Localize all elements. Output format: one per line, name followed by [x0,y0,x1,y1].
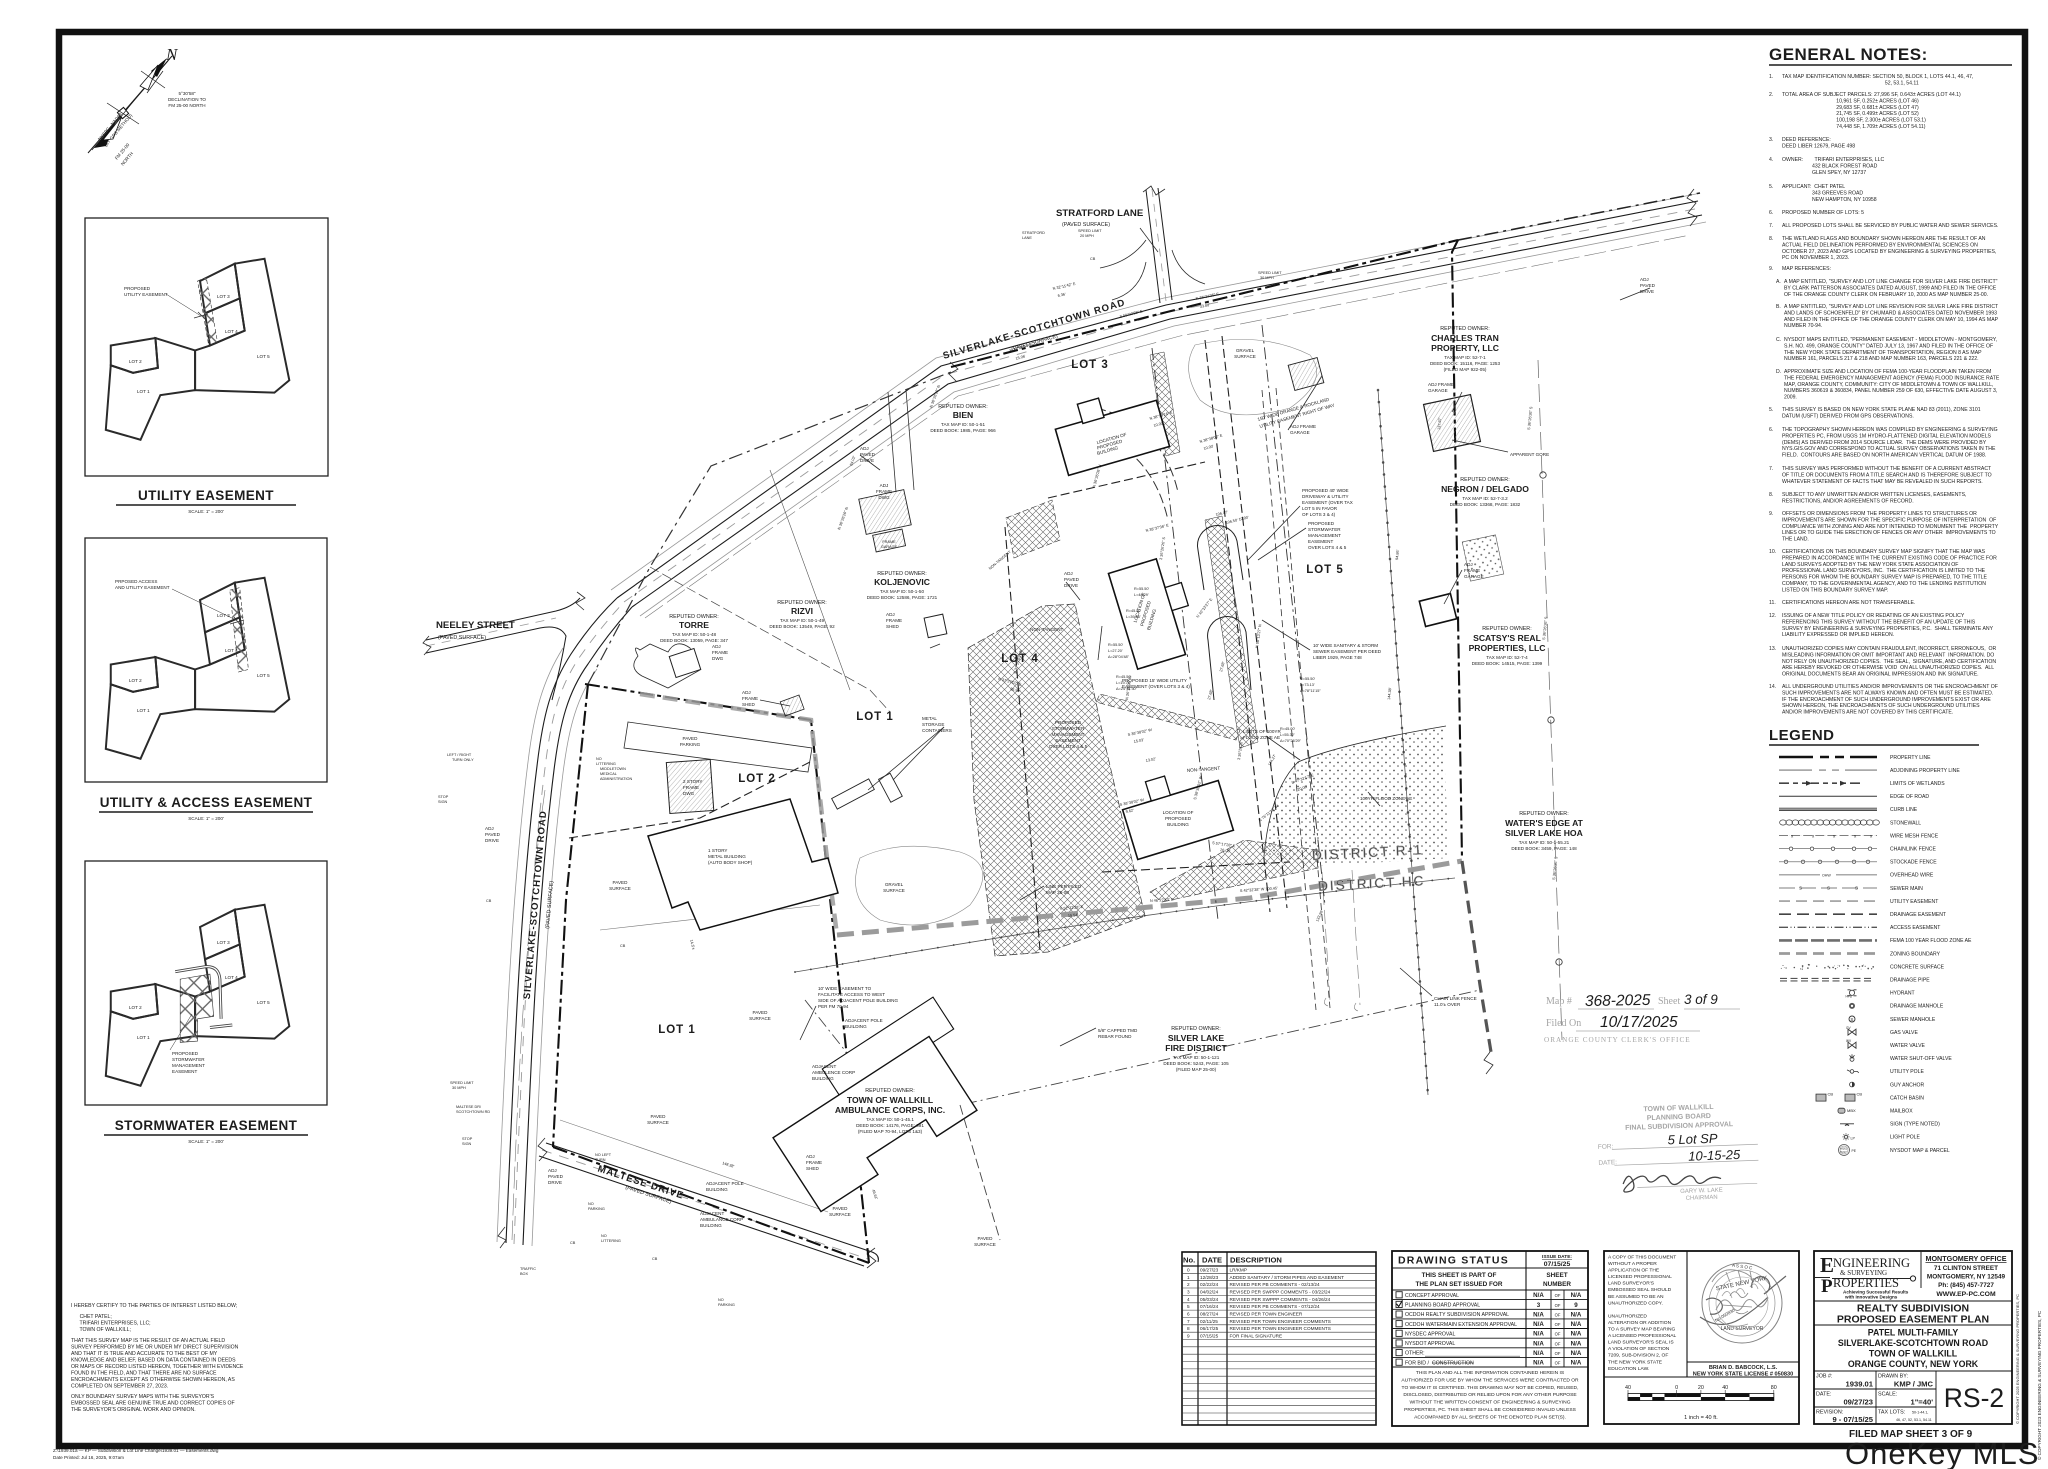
svg-text:FRAME: FRAME [876,489,892,494]
svg-text:OWNER: TRIFARI ENTERPRI: OWNER: TRIFARI ENTERPRISES, LLC [1782,157,1884,163]
svg-text:DEED REFERENCE:: DEED REFERENCE: [1782,137,1831,143]
svg-text:SILVER LAKE HOA: SILVER LAKE HOA [1505,828,1583,838]
svg-text:(PAVED SURFACE): (PAVED SURFACE) [438,635,486,641]
svg-text:CB: CB [1090,257,1096,261]
svg-text:30 MPH: 30 MPH [1260,276,1274,280]
svg-text:DEED BOOK: 13059, PAGE: 347: DEED BOOK: 13059, PAGE: 347 [660,638,728,643]
svg-text:ADJ: ADJ [485,826,494,831]
svg-text:STORMWATER: STORMWATER [172,1057,205,1062]
svg-text:PROPERTIES, LLC: PROPERTIES, LLC [1469,643,1546,653]
svg-text:DRAINAGE MANHOLE: DRAINAGE MANHOLE [1890,1004,1944,1010]
svg-text:with Innovative Designs: with Innovative Designs [1844,1295,1898,1300]
svg-text:TAX MAP ID: 50-1-121: TAX MAP ID: 50-1-121 [1173,1055,1220,1060]
svg-text:FOR FINAL SIGNATURE: FOR FINAL SIGNATURE [1230,1334,1283,1339]
svg-text:FOUND IN THE FIELD, AND THAT T: FOUND IN THE FIELD, AND THAT THERE ARE N… [71,1371,217,1377]
svg-text:LICENSED PROFESSIONAL: LICENSED PROFESSIONAL [1608,1274,1672,1280]
svg-text:© COPYRIGHT 2025 ENGINEERING &: © COPYRIGHT 2025 ENGINEERING & SURVEYING… [2015,1294,2020,1424]
svg-text:HYD: HYD [1846,994,1853,998]
svg-text:TRAFFIC: TRAFFIC [520,1267,536,1271]
svg-text:LIGHT POLE: LIGHT POLE [1890,1135,1921,1141]
svg-text:TAX MAP ID: 50-1-49: TAX MAP ID: 50-1-49 [780,618,824,623]
svg-text:COMPLETED ON SEPTEMBER 27, 202: COMPLETED ON SEPTEMBER 27, 2023. [71,1384,168,1390]
svg-text:MAP, ORANGE COUNTY, COMMUNITY:: MAP, ORANGE COUNTY, COMMUNITY: CITY OF M… [1784,382,1993,388]
svg-text:NYSDEC APPROVAL: NYSDEC APPROVAL [1405,1331,1455,1337]
svg-text:9: 9 [1574,1302,1578,1309]
svg-text:ADJ: ADJ [1640,277,1649,282]
svg-text:APPARENT GORE: APPARENT GORE [1510,452,1549,457]
svg-text:LOT 3: LOT 3 [217,294,230,299]
svg-text:ONLY BOUNDARY SURVEY MAPS WITH: ONLY BOUNDARY SURVEY MAPS WITH THE SURVE… [71,1394,215,1400]
svg-text:WV: WV [1846,1039,1852,1043]
svg-text:ADJOINING PROPERTY LINE: ADJOINING PROPERTY LINE [1890,768,1960,774]
svg-text:TOWN OF WALLKILL;: TOWN OF WALLKILL; [71,1327,131,1333]
svg-text:NEELEY STREET: NEELEY STREET [436,620,515,631]
svg-text:DEED BOOK: 12586, PAGE: 1721: DEED BOOK: 12586, PAGE: 1721 [867,595,938,600]
svg-text:3 of 9: 3 of 9 [1684,992,1718,1007]
svg-text:MISLEADING INFORMATION OR OMIT: MISLEADING INFORMATION OR OMIT IMPORTANT… [1782,652,1994,658]
svg-text:SIGN (TYPE NOTED): SIGN (TYPE NOTED) [1890,1122,1940,1128]
svg-text:KOLJENOVIC: KOLJENOVIC [874,577,930,587]
svg-text:5: 5 [1187,1304,1190,1309]
svg-text:THE LAND.: THE LAND. [1782,537,1809,543]
svg-text:WWW.EP-PC.COM: WWW.EP-PC.COM [1936,1291,1996,1298]
svg-text:N/A: N/A [1533,1292,1544,1299]
svg-text:N/A: N/A [1533,1350,1544,1357]
svg-text:N/A: N/A [1533,1360,1544,1367]
svg-text:07/15/25: 07/15/25 [1544,1261,1571,1268]
svg-text:SCATSY'S REAL: SCATSY'S REAL [1473,633,1541,643]
svg-text:OneKey MLS: OneKey MLS [1845,1436,2039,1469]
svg-text:WATER'S EDGE AT: WATER'S EDGE AT [1505,818,1584,828]
svg-text:Map #: Map # [1546,996,1572,1007]
svg-text:METAL BUILDING: METAL BUILDING [708,854,746,859]
svg-text:THE FEDERAL EMERGENCY MANAGEME: THE FEDERAL EMERGENCY MANAGEMENT AGENCY … [1784,375,2000,381]
svg-text:REVISED PER SWPPP COMMENTS - 0: REVISED PER SWPPP COMMENTS - 04/26/24 [1230,1297,1331,1302]
svg-text:HYDRANT: HYDRANT [1890,991,1915,997]
svg-text:0: 0 [1187,1267,1190,1272]
svg-text:E: E [1820,1253,1834,1277]
svg-text:FEMA 100 YEAR FLOOD ZONE AE: FEMA 100 YEAR FLOOD ZONE AE [1890,938,1972,944]
svg-text:CB: CB [1857,1092,1863,1097]
svg-text:GARAGE: GARAGE [1428,388,1448,393]
svg-text:BUILDING: BUILDING [812,1076,834,1081]
svg-text:SEWER MAIN: SEWER MAIN [1890,886,1923,892]
svg-text:(DEMS) AS DERIVED FROM 2014 SO: (DEMS) AS DERIVED FROM 2014 SOURCE LIDAR… [1782,440,1987,446]
svg-text:UTILITY & ACCESS EASEMENT: UTILITY & ACCESS EASEMENT [100,795,313,810]
svg-text:432 BLACK FOREST ROAD: 432 BLACK FOREST ROAD [1782,163,1878,169]
svg-text:NO: NO [588,1202,594,1206]
svg-text:OF: OF [1555,1322,1561,1327]
svg-text:TORRE: TORRE [679,620,709,630]
svg-text:NUMBER: NUMBER [1543,1281,1571,1288]
svg-text:GENERAL NOTES:: GENERAL NOTES: [1769,45,1928,64]
svg-text:REPUTED OWNER:: REPUTED OWNER: [1460,477,1509,483]
svg-text:6: 6 [1187,1312,1190,1317]
svg-text:A MAP ENTITLED, "SURVEY AND LO: A MAP ENTITLED, "SURVEY AND LOT LINE REV… [1784,304,1999,310]
svg-text:R=45.00': R=45.00' [1280,727,1295,731]
svg-text:N: N [165,45,179,64]
svg-text:S.H. NO. 499, ORANGE COUNTY" D: S.H. NO. 499, ORANGE COUNTY" DATED JULY … [1784,343,1993,349]
svg-text:SCOTCHTOWN RD: SCOTCHTOWN RD [456,1110,490,1114]
svg-text:R=55.50': R=55.50' [1300,677,1315,681]
svg-text:L=73.13': L=73.13' [1300,683,1315,687]
svg-text:PER FM 70-94: PER FM 70-94 [818,1004,849,1009]
svg-text:PROPOSED: PROPOSED [1165,816,1192,821]
svg-text:SURFACE: SURFACE [829,1212,851,1217]
svg-text:L=55.32': L=55.32' [1280,733,1295,737]
svg-text:Δ=78°11'15": Δ=78°11'15" [1300,689,1321,693]
svg-text:LOT 1: LOT 1 [137,1035,150,1040]
svg-text:A.: A. [1776,279,1781,285]
svg-text:THAT THIS SURVEY MAP IS THE RE: THAT THIS SURVEY MAP IS THE RESULT OF AN… [71,1338,225,1344]
svg-text:02/22/24: 02/22/24 [1200,1282,1219,1287]
svg-text:OF: OF [1555,1351,1561,1356]
svg-text:THE PLAN SET ISSUED FOR: THE PLAN SET ISSUED FOR [1416,1281,1503,1288]
svg-text:L=19.74': L=19.74' [1116,681,1131,685]
svg-text:DWG: DWG [683,791,695,796]
svg-text:CONCRETE SURFACE: CONCRETE SURFACE [1890,964,1945,970]
svg-text:8.: 8. [1769,236,1773,242]
svg-text:THE TOPOGRAPHY SHOWN HEREON WA: THE TOPOGRAPHY SHOWN HEREON WAS COMPILED… [1782,427,1998,433]
svg-text:PROPOSED EASEMENT PLAN: PROPOSED EASEMENT PLAN [1837,1314,1989,1326]
svg-text:1 STORY: 1 STORY [708,848,728,853]
svg-text:TAX MAP ID: 52-7-1: TAX MAP ID: 52-7-1 [1444,355,1486,360]
svg-text:SPEED LIMIT: SPEED LIMIT [450,1081,474,1085]
svg-text:7209, SUB-DIVISION 2, OF: 7209, SUB-DIVISION 2, OF [1608,1353,1668,1359]
svg-text:NGINEERING: NGINEERING [1833,1256,1910,1270]
svg-text:EDGE OF ROAD: EDGE OF ROAD [1890,794,1929,800]
svg-text:NYSDOT MAP & PARCEL: NYSDOT MAP & PARCEL [1890,1148,1950,1154]
svg-text:FRAME: FRAME [886,618,902,623]
svg-text:PROPOSED: PROPOSED [1308,521,1335,526]
svg-text:LOT 4: LOT 4 [225,329,238,334]
svg-text:ADJ: ADJ [1064,571,1073,576]
svg-text:AND FILED IN THE OFFICE OF THE: AND FILED IN THE OFFICE OF THE ORANGE CO… [1784,317,1999,323]
svg-text:P: P [1821,1276,1833,1297]
svg-text:NYS.GIS.GOV AND CORRESPOND TO: NYS.GIS.GOV AND CORRESPOND TO ACTUAL SUR… [1782,446,1996,452]
svg-text:OTHER:: OTHER: [1405,1351,1425,1357]
svg-text:EMBOSSED SEAL ARE GENUINE TRUE: EMBOSSED SEAL ARE GENUINE TRUE AND CORRE… [71,1401,235,1407]
svg-text:OR MAPS OF RECORD LISTED HEREO: OR MAPS OF RECORD LISTED HEREON, TOGETHE… [71,1364,244,1370]
svg-text:Δ=24°51'30": Δ=24°51'30" [1116,687,1138,691]
svg-text:DECLINATION TO: DECLINATION TO [168,97,206,102]
svg-text:DEED BOOK: 14515, PAGE: 1399: DEED BOOK: 14515, PAGE: 1399 [1472,661,1543,666]
svg-text:TAX MAP ID: 50-1-50: TAX MAP ID: 50-1-50 [880,589,924,594]
svg-text:1: 1 [1187,1275,1190,1280]
svg-text:SIGN: SIGN [438,800,448,804]
svg-text:368-2025: 368-2025 [1585,992,1651,1010]
svg-text:PAVED: PAVED [548,1174,564,1179]
svg-text:LITTERING: LITTERING [596,762,616,766]
svg-text:LOT 2: LOT 2 [129,359,142,364]
svg-text:PARKING: PARKING [588,1207,605,1211]
svg-text:LANE: LANE [1022,236,1032,240]
svg-text:UNAUTHORIZED COPIES MAY CONTAI: UNAUTHORIZED COPIES MAY CONTAIN FRAUDULE… [1782,646,1996,652]
svg-text:ADDED SANITARY / STORM PIPES A: ADDED SANITARY / STORM PIPES AND EASEMEN… [1230,1275,1345,1280]
svg-text:THIS SURVEY IS BASED ON NEW YO: THIS SURVEY IS BASED ON NEW YORK STATE P… [1782,407,1981,413]
svg-text:LOT 3: LOT 3 [1071,359,1109,371]
svg-text:OF: OF [1555,1341,1561,1346]
svg-text:REVISED PER TOWN ENGINEER: REVISED PER TOWN ENGINEER [1230,1312,1303,1317]
svg-text:REPUTED OWNER:: REPUTED OWNER: [865,1088,914,1094]
svg-text:GRAVEL: GRAVEL [1236,348,1255,353]
svg-text:LOT 1: LOT 1 [856,711,894,723]
svg-text:CHAIN LINK FENCE: CHAIN LINK FENCE [1434,996,1477,1001]
svg-text:N/A: N/A [1571,1292,1582,1299]
svg-text:BUILDING: BUILDING [1167,822,1189,827]
svg-text:PLANNING BOARD APPROVAL: PLANNING BOARD APPROVAL [1405,1303,1480,1309]
svg-text:TAX LOTS:: TAX LOTS: [1878,1410,1905,1416]
svg-text:OHW: OHW [1822,873,1831,877]
svg-text:PROPOSED NUMBER OF LOTS: 5: PROPOSED NUMBER OF LOTS: 5 [1782,210,1864,216]
svg-text:AND THAT IT IS TRUE AND ACCURA: AND THAT IT IS TRUE AND ACCURATE TO THE … [71,1351,218,1357]
svg-text:WIRE MESH FENCE: WIRE MESH FENCE [1890,833,1939,839]
svg-text:DRIVE: DRIVE [485,838,499,843]
svg-text:OVERHEAD WIRE: OVERHEAD WIRE [1890,873,1934,879]
svg-text:SILVERLAKE-SCOTCHTOWN ROAD: SILVERLAKE-SCOTCHTOWN ROAD [1838,1338,1988,1348]
svg-text:CB: CB [570,1241,576,1245]
svg-text:SPEED LIMIT: SPEED LIMIT [1078,229,1102,233]
svg-text:SEWER MANHOLE: SEWER MANHOLE [1890,1017,1936,1023]
svg-text:10' WIDE EASEMENT TO: 10' WIDE EASEMENT TO [818,986,872,991]
svg-text:LAND SURVEYS ADOPTED BY THE NE: LAND SURVEYS ADOPTED BY THE NEW YORK STA… [1782,562,1958,568]
svg-text:DRIVEWAY & UTILITY: DRIVEWAY & UTILITY [1302,494,1349,499]
svg-text:FRAME: FRAME [882,540,896,544]
svg-text:N/A: N/A [1571,1331,1582,1338]
svg-text:TAX MAP ID: 52-7-4: TAX MAP ID: 52-7-4 [1486,655,1528,660]
svg-text:TAX MAP ID: 52-7-3.2: TAX MAP ID: 52-7-3.2 [1462,496,1508,501]
svg-text:KNOWLEDGE AND BELIEF, BASED ON: KNOWLEDGE AND BELIEF, BASED ON DATA CONT… [71,1358,236,1364]
svg-text:MIDDLETOWN: MIDDLETOWN [600,767,626,771]
svg-text:A COPY OF THIS DOCUMENT: A COPY OF THIS DOCUMENT [1608,1255,1676,1261]
svg-text:LOT 5: LOT 5 [257,673,270,678]
svg-text:GARAGE: GARAGE [1464,574,1484,579]
svg-text:LIABILITY EXPRESSED OR IMPLIED: LIABILITY EXPRESSED OR IMPLIED HEREON. [1782,632,1894,638]
svg-text:2 STORY: 2 STORY [683,779,703,784]
svg-text:EMBOSSED SEAL SHOULD: EMBOSSED SEAL SHOULD [1608,1287,1672,1293]
svg-text:REVISED PER SWPPP COMMENTS - 0: REVISED PER SWPPP COMMENTS - 03/22/24 [1230,1290,1331,1295]
svg-text:CONTAINERS: CONTAINERS [922,728,952,733]
svg-text:NUMBER 161, PARCELS 217 & 218: NUMBER 161, PARCELS 217 & 218 AND MAP NU… [1784,356,1979,362]
svg-text:DRAINAGE PIPE: DRAINAGE PIPE [1890,978,1930,984]
svg-text:DISCLOSED, DISTRIBUTED OR RELI: DISCLOSED, DISTRIBUTED OR RELIED UPON FO… [1403,1392,1577,1398]
svg-text:THIS PLAN AND ALL THE INFORMAT: THIS PLAN AND ALL THE INFORMATION CONTAI… [1416,1370,1565,1376]
svg-text:DEED BOOK: 3459, PAGE: 148: DEED BOOK: 3459, PAGE: 148 [1511,846,1577,851]
svg-text:IF THE ENCROACHMENT OF SUCH UN: IF THE ENCROACHMENT OF SUCH UNDERGROUND … [1782,697,1991,703]
svg-text:ADJ: ADJ [548,1168,557,1173]
svg-text:46, 47, 52, 53.1, 54.11: 46, 47, 52, 53.1, 54.11 [1896,1418,1932,1422]
svg-text:NO: NO [718,1298,724,1302]
svg-text:1"=40': 1"=40' [1910,1398,1933,1407]
svg-text:Sheet: Sheet [1658,996,1680,1007]
svg-text:BUILDING: BUILDING [700,1223,722,1228]
svg-text:EDUCATION LAW.: EDUCATION LAW. [1608,1366,1649,1372]
svg-text:(FILED MAP 70-94, LOTS 1&3): (FILED MAP 70-94, LOTS 1&3) [858,1129,923,1134]
svg-text:L=39.56': L=39.56' [1126,615,1141,619]
svg-text:JOB #:: JOB #: [1816,1374,1832,1380]
svg-text:OCDOH WATERMAIN EXTENSION APPR: OCDOH WATERMAIN EXTENSION APPROVAL [1405,1322,1517,1328]
svg-text:LINE PER FILED: LINE PER FILED [1046,884,1082,889]
svg-text:02/11/25: 02/11/25 [1200,1319,1218,1324]
svg-text:ADJ: ADJ [886,612,895,617]
svg-text:MAP REFERENCES:: MAP REFERENCES: [1782,266,1831,272]
svg-text:UTILITY EASEMENT: UTILITY EASEMENT [1890,899,1938,905]
svg-text:DEED BOOK: 13549, PAGE: 92: DEED BOOK: 13549, PAGE: 92 [769,624,835,629]
svg-text:3.: 3. [1769,137,1773,143]
svg-text:NYSDOT MAPS ENTITLED, "PERMANE: NYSDOT MAPS ENTITLED, "PERMANENT EASEMEN… [1784,337,1997,343]
svg-text:PAVED: PAVED [753,1010,769,1015]
svg-text:R=45.50': R=45.50' [1126,609,1141,613]
svg-text:CB: CB [652,1257,658,1261]
svg-text:SHEET: SHEET [1546,1272,1567,1279]
svg-text:FIRE DISTRICT: FIRE DISTRICT [1165,1043,1227,1053]
svg-text:AMBULANCE CORPS, INC.: AMBULANCE CORPS, INC. [835,1105,945,1115]
svg-text:SURVEY PERFORMED BY ME OR UNDE: SURVEY PERFORMED BY ME OR UNDER MY DIREC… [71,1345,239,1351]
svg-text:ADJACENT: ADJACENT [812,1064,836,1069]
svg-text:DEED BOOK: 1985, PAGE: 966: DEED BOOK: 1985, PAGE: 966 [930,428,996,433]
svg-text:AND LANDS OF SCHOENFELD" BY CH: AND LANDS OF SCHOENFELD" BY CHUMARD & AS… [1784,310,1997,316]
svg-text:LOT 2: LOT 2 [129,1005,142,1010]
svg-text:AND/OR IMPROVEMENTS ARE NOT CO: AND/OR IMPROVEMENTS ARE NOT COVERED BY T… [1782,710,1953,716]
svg-text:MEDICAL: MEDICAL [600,772,617,776]
svg-text:09/27/23: 09/27/23 [1200,1267,1219,1272]
svg-text:NEGRON / DELGADO: NEGRON / DELGADO [1441,484,1529,494]
svg-text:BE ASSUMED TO BE AN: BE ASSUMED TO BE AN [1608,1294,1664,1300]
svg-text:7: 7 [1187,1319,1190,1324]
svg-text:DATUM (USFT) DERIVED FROM GPS: DATUM (USFT) DERIVED FROM GPS OBSERVATIO… [1782,413,1914,419]
svg-text:RIZVI: RIZVI [791,606,813,616]
svg-text:CB: CB [486,899,492,903]
svg-text:S: S [1799,886,1802,891]
svg-text:LOT 1: LOT 1 [658,1024,696,1036]
svg-text:ORANGE COUNTY, NEW YORK: ORANGE COUNTY, NEW YORK [1848,1359,1979,1369]
svg-text:S: S [1850,1017,1853,1022]
svg-text:LISTED ON THIS BOUNDARY SURVEY: LISTED ON THIS BOUNDARY SURVEY MAP. [1782,587,1888,593]
svg-text:8: 8 [1187,1326,1190,1331]
svg-text:REPUTED OWNER:: REPUTED OWNER: [1171,1026,1220,1032]
svg-text:LOT 4: LOT 4 [225,975,238,980]
svg-text:2009.: 2009. [1784,395,1797,401]
svg-text:PC ON NOVEMBER 1, 2023.: PC ON NOVEMBER 1, 2023. [1782,255,1849,261]
svg-text:71 CLINTON STREET: 71 CLINTON STREET [1934,1265,1998,1272]
svg-text:FOR:: FOR: [1598,1143,1614,1151]
svg-text:MANAGEMENT: MANAGEMENT [172,1063,205,1068]
svg-text:21,745 SF, 0.499± ACRES (LOT 5: 21,745 SF, 0.499± ACRES (LOT 52) [1782,111,1919,117]
svg-text:DEED BOOK: 5243, PAGE: 105: DEED BOOK: 5243, PAGE: 105 [1163,1061,1229,1066]
svg-text:CURB LINE: CURB LINE [1890,807,1918,813]
svg-text:MAP 25-00: MAP 25-00 [1046,890,1069,895]
svg-text:1 inch = 40 ft.: 1 inch = 40 ft. [1684,1415,1718,1421]
svg-text:(FILED MAP 25-00): (FILED MAP 25-00) [1176,1067,1217,1072]
svg-text:12.: 12. [1769,613,1776,619]
svg-text:FRAME: FRAME [1464,568,1480,573]
svg-text:WHATEVER STATEMENT OF FACTS TH: WHATEVER STATEMENT OF FACTS THAT MAY BE … [1782,479,1983,485]
svg-text:5 Lot SP: 5 Lot SP [1667,1131,1718,1148]
svg-text:ADJ FRAME: ADJ FRAME [1428,382,1454,387]
svg-text:3: 3 [1537,1302,1541,1309]
svg-text:5/8" CAPPED TMD: 5/8" CAPPED TMD [1098,1028,1138,1033]
svg-text:CERTIFICATIONS ON THIS BOUNDAR: CERTIFICATIONS ON THIS BOUNDARY SURVEY M… [1782,549,1986,555]
svg-text:ADJ: ADJ [860,446,869,451]
svg-text:UNAUTHORIZED: UNAUTHORIZED [1608,1313,1647,1319]
svg-text:14.: 14. [1769,684,1776,690]
svg-text:TAX MAP ID: 50-1-55.21: TAX MAP ID: 50-1-55.21 [1519,840,1570,845]
svg-text:2.: 2. [1769,92,1773,98]
svg-text:LOT 5 IN FAVOR: LOT 5 IN FAVOR [1302,506,1338,511]
svg-text:THE SURVEYOR'S ORIGINAL WORK A: THE SURVEYOR'S ORIGINAL WORK AND OPINION… [71,1407,196,1413]
svg-text:SCALE: 1" = 200': SCALE: 1" = 200' [188,816,224,821]
svg-text:THIS SHEET IS PART OF: THIS SHEET IS PART OF [1422,1272,1497,1279]
svg-text:ADJACENT POLE: ADJACENT POLE [845,1018,883,1023]
svg-text:CHAIRMAN: CHAIRMAN [1686,1195,1718,1202]
svg-text:SHOWN HEREON, THE ENCROACHMENT: SHOWN HEREON, THE ENCROACHMENTS OF SUCH … [1782,703,1980,709]
svg-text:STOP: STOP [438,795,449,799]
svg-text:CHARLES TRAN: CHARLES TRAN [1431,333,1499,343]
svg-text:AUTHORIZED FOR USE BY WHOM THE: AUTHORIZED FOR USE BY WHOM THE SERVICES … [1401,1377,1579,1383]
svg-text:1.: 1. [1769,74,1773,80]
svg-text:PROPERTIES, PC. THIS SHEET SHA: PROPERTIES, PC. THIS SHEET SHALL BE CONS… [1404,1407,1577,1413]
svg-text:10.: 10. [1769,549,1776,555]
svg-text:(PAVED SURFACE): (PAVED SURFACE) [1062,222,1110,228]
svg-text:LEGEND: LEGEND [1769,727,1835,744]
svg-text:SUBJECT TO ANY UNWRITTEN AND/O: SUBJECT TO ANY UNWRITTEN AND/OR WRITTEN … [1782,492,1966,498]
svg-text:MANAGEMENT: MANAGEMENT [1052,732,1085,737]
svg-text:PARKING: PARKING [680,742,701,747]
svg-text:OF: OF [1555,1332,1561,1337]
svg-text:PROPOSED 40' WIDE: PROPOSED 40' WIDE [1302,488,1349,493]
svg-text:N/A: N/A [1533,1331,1544,1338]
svg-text:S: S [1827,886,1830,891]
svg-text:TOWN OF WALLKILL: TOWN OF WALLKILL [1869,1349,1958,1359]
svg-text:GLEN SPEY, NY 12737: GLEN SPEY, NY 12737 [1782,170,1866,176]
svg-text:(AUTO BODY SHOP): (AUTO BODY SHOP) [708,860,753,865]
svg-text:74,448 SF, 1.709± ACRES (LOT 5: 74,448 SF, 1.709± ACRES (LOT 54.11) [1782,124,1926,130]
svg-text:CB: CB [620,944,626,948]
svg-text:NOT RELY ON UNAUTHORIZED COPIE: NOT RELY ON UNAUTHORIZED COPIES. THE SEA… [1782,659,1996,665]
svg-text:STOCKADE FENCE: STOCKADE FENCE [1890,860,1937,866]
svg-text:EASEMENT (OVER TAX: EASEMENT (OVER TAX [1302,500,1353,505]
svg-text:TURN ONLY: TURN ONLY [452,758,474,762]
svg-text:ADJ: ADJ [712,644,721,649]
svg-text:STORMWATER: STORMWATER [1052,726,1085,731]
svg-text:10' WIDE SANITARY & STORM: 10' WIDE SANITARY & STORM [1313,643,1378,648]
svg-text:OCDOH REALTY SUBDIVISION APPRO: OCDOH REALTY SUBDIVISION APPROVAL [1405,1312,1509,1318]
svg-text:DATE: DATE [1202,1256,1222,1265]
svg-text:PROPERTIES PC, FROM USGS 1M HY: PROPERTIES PC, FROM USGS 1M HYDRO-FLATTE… [1782,433,1992,439]
svg-text:N/A: N/A [1571,1350,1582,1357]
svg-text:DRAINAGE EASEMENT: DRAINAGE EASEMENT [1890,912,1946,918]
svg-text:N/A: N/A [1533,1321,1544,1328]
svg-text:STRATFORD LANE: STRATFORD LANE [1056,208,1144,219]
svg-text:MALTESE DR/: MALTESE DR/ [456,1105,482,1109]
svg-text:OF TITLE OR DOCUMENTS FROM A T: OF TITLE OR DOCUMENTS FROM A TITLE SEARC… [1782,472,1992,478]
svg-text:RESTRICTIONS, AND/OR AGREEMENT: RESTRICTIONS, AND/OR AGREEMENTS OF RECOR… [1782,498,1914,504]
svg-text:Filed On: Filed On [1546,1018,1581,1029]
svg-text:ORIGINAL DOCUMENTS BEAR AN ORI: ORIGINAL DOCUMENTS BEAR AN ORIGINAL IMPR… [1782,672,1979,678]
svg-text:4.: 4. [1769,157,1773,163]
svg-text:ALTERATION OR ADDITION: ALTERATION OR ADDITION [1608,1320,1672,1326]
svg-text:REPUTED OWNER:: REPUTED OWNER: [1519,811,1568,817]
svg-text:5.: 5. [1769,407,1773,413]
svg-text:06/17/25: 06/17/25 [1200,1326,1219,1331]
svg-text:FACILITATE ACCESS TO WEST: FACILITATE ACCESS TO WEST [818,992,885,997]
svg-text:PROPERTY LINE: PROPERTY LINE [1890,755,1931,761]
svg-text:DESCRIPTION: DESCRIPTION [1230,1256,1282,1265]
svg-text:STRATFORD: STRATFORD [1022,231,1045,235]
svg-text:MONTGOMERY OFFICE: MONTGOMERY OFFICE [1925,1254,2006,1263]
svg-text:LIMITS OF WETLANDS: LIMITS OF WETLANDS [1890,781,1945,787]
svg-text:LOT 1: LOT 1 [137,708,150,713]
